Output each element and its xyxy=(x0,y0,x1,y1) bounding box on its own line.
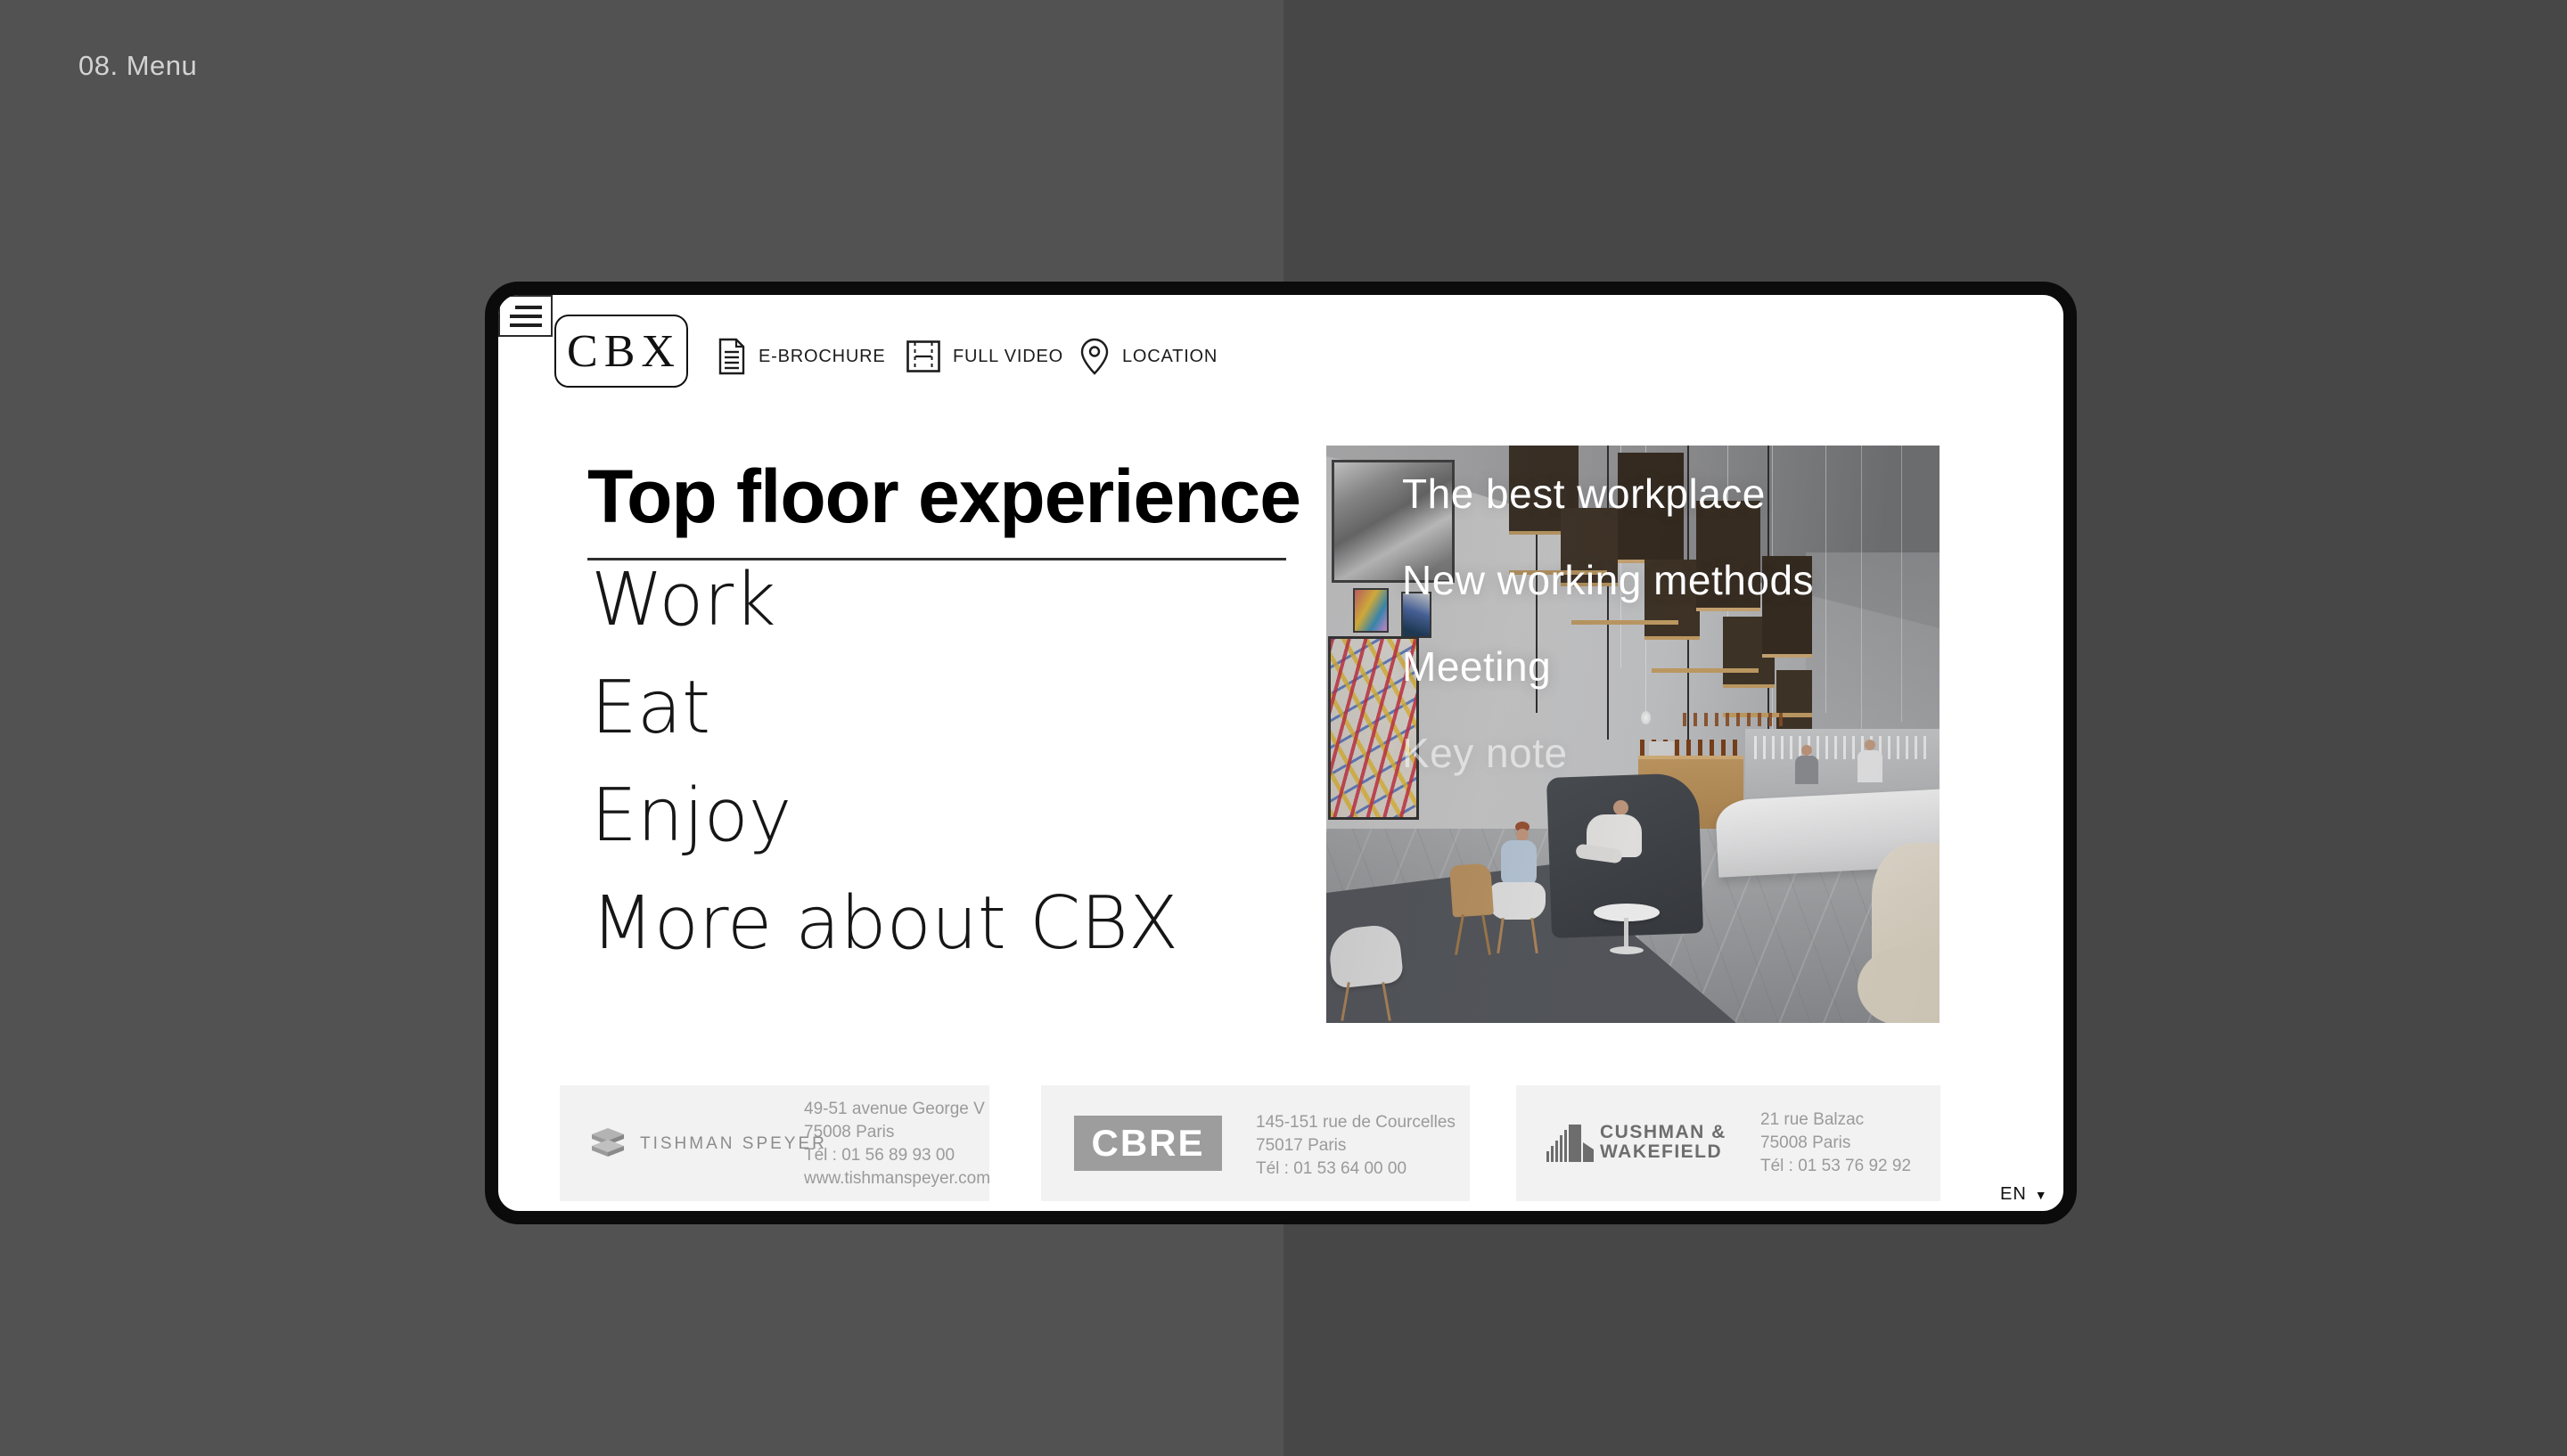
menu-item-eat[interactable]: Eat xyxy=(591,667,710,750)
cbx-logo-text: CBX xyxy=(567,325,681,378)
logo-line: WAKEFIELD xyxy=(1600,1142,1726,1162)
hero-image: The best workplace New working methods M… xyxy=(1326,446,1940,1023)
address-line: 75008 Paris xyxy=(1760,1132,1911,1155)
partner-card-cbre: CBRE 145-151 rue de Courcelles 75017 Par… xyxy=(1041,1085,1470,1201)
logo-line: CUSHMAN & xyxy=(1600,1123,1726,1142)
film-icon xyxy=(906,340,940,372)
menu-title-top-floor-experience[interactable]: Top floor experience xyxy=(587,452,1300,542)
stacked-slabs-icon xyxy=(587,1126,628,1162)
language-selector[interactable]: EN ▼ xyxy=(2000,1184,2047,1205)
document-icon xyxy=(718,338,746,375)
partner-card-cushman-wakefield: CUSHMAN & WAKEFIELD 21 rue Balzac 75008 … xyxy=(1516,1085,1940,1201)
nav-full-video-label: FULL VIDEO xyxy=(953,347,1063,367)
site-frame-card: CBX E-BROCHURE FULL VIDEO LOCATION xyxy=(485,282,2077,1224)
address-line: Tél : 01 56 89 93 00 xyxy=(804,1144,990,1167)
slide-label: 08. Menu xyxy=(78,50,197,82)
map-pin-icon xyxy=(1079,338,1110,375)
nav-e-brochure[interactable]: E-BROCHURE xyxy=(718,331,885,382)
submenu-item-new-working-methods[interactable]: New working methods xyxy=(1402,554,1814,608)
cbre-logo-text: CBRE xyxy=(1091,1122,1204,1165)
hamburger-bar xyxy=(510,315,542,318)
cbre-logo: CBRE xyxy=(1074,1116,1222,1171)
nav-location[interactable]: LOCATION xyxy=(1079,331,1218,382)
language-current: EN xyxy=(2000,1184,2027,1205)
menu-item-enjoy[interactable]: Enjoy xyxy=(591,774,791,858)
skyline-bars-icon xyxy=(1545,1119,1595,1166)
cbx-logo[interactable]: CBX xyxy=(554,315,688,388)
submenu-item-best-workplace[interactable]: The best workplace xyxy=(1402,468,1766,521)
address-line: 21 rue Balzac xyxy=(1760,1108,1911,1132)
partner-card-tishman-speyer: TISHMAN SPEYER 49-51 avenue George V 750… xyxy=(560,1085,989,1201)
hamburger-bar xyxy=(515,306,542,309)
partner-website-link[interactable]: www.tishmanspeyer.com xyxy=(804,1167,990,1190)
tishman-speyer-logo-text: TISHMAN SPEYER xyxy=(640,1134,827,1154)
submenu-item-key-note[interactable]: Key note xyxy=(1402,727,1568,781)
tishman-speyer-address: 49-51 avenue George V 75008 Paris Tél : … xyxy=(804,1098,990,1190)
caret-down-icon: ▼ xyxy=(2035,1188,2047,1202)
nav-e-brochure-label: E-BROCHURE xyxy=(759,347,885,367)
menu-item-work[interactable]: Work xyxy=(591,559,776,642)
address-line: 145-151 rue de Courcelles xyxy=(1256,1111,1456,1134)
address-line: Tél : 01 53 64 00 00 xyxy=(1256,1157,1456,1181)
cbre-address: 145-151 rue de Courcelles 75017 Paris Té… xyxy=(1256,1111,1456,1181)
menu-item-more-about-cbx[interactable]: More about CBX xyxy=(591,882,1178,966)
hamburger-menu-icon[interactable] xyxy=(498,295,553,337)
site-viewport: CBX E-BROCHURE FULL VIDEO LOCATION xyxy=(498,295,2063,1211)
hamburger-bar xyxy=(510,323,542,327)
address-line: 75017 Paris xyxy=(1256,1134,1456,1157)
address-line: Tél : 01 53 76 92 92 xyxy=(1760,1155,1911,1178)
submenu-item-meeting[interactable]: Meeting xyxy=(1402,641,1551,694)
cushman-wakefield-logo-text: CUSHMAN & WAKEFIELD xyxy=(1600,1123,1726,1162)
address-line: 49-51 avenue George V xyxy=(804,1098,990,1121)
cushman-wakefield-address: 21 rue Balzac 75008 Paris Tél : 01 53 76… xyxy=(1760,1108,1911,1178)
address-line: 75008 Paris xyxy=(804,1121,990,1144)
nav-full-video[interactable]: FULL VIDEO xyxy=(906,331,1063,382)
nav-location-label: LOCATION xyxy=(1122,347,1218,367)
